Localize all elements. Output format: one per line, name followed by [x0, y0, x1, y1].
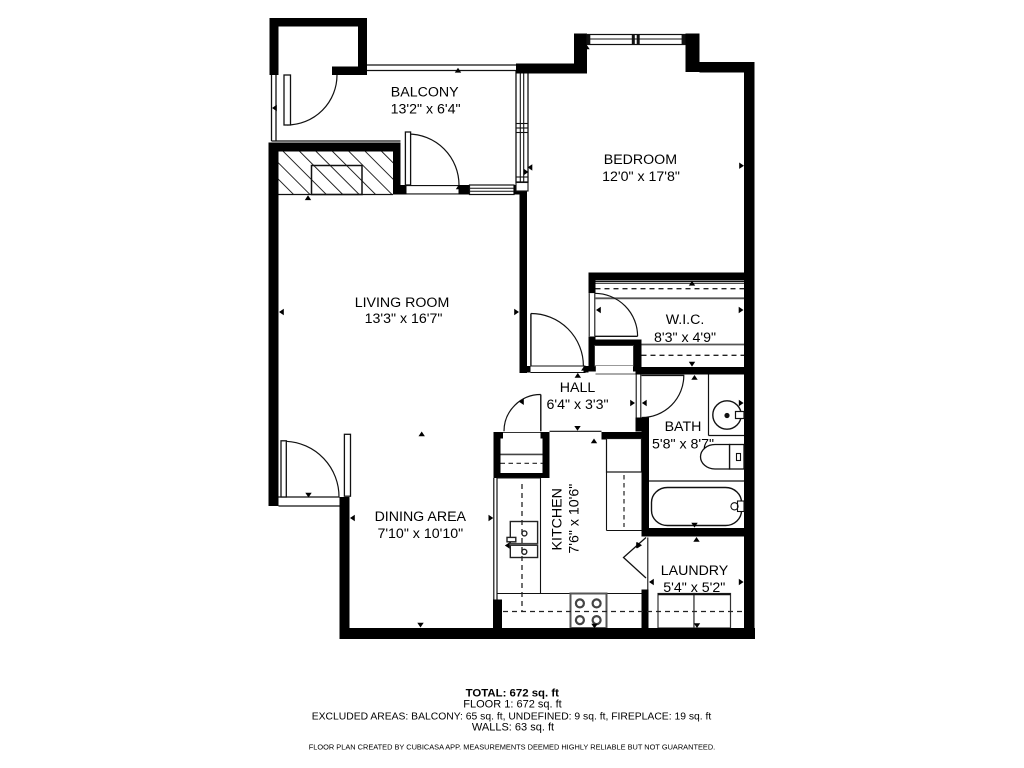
svg-text:FLOOR 1: 672 sq. ft: FLOOR 1: 672 sq. ft	[463, 699, 561, 711]
svg-text:5'8" x 8'7": 5'8" x 8'7"	[652, 437, 714, 453]
svg-text:8'3" x 4'9": 8'3" x 4'9"	[654, 330, 716, 346]
svg-text:FLOOR PLAN CREATED BY CUBICASA: FLOOR PLAN CREATED BY CUBICASA APP. MEAS…	[309, 743, 715, 752]
svg-text:W.I.C.: W.I.C.	[666, 312, 705, 328]
svg-text:7'10" x 10'10": 7'10" x 10'10"	[377, 526, 463, 542]
svg-text:HALL: HALL	[560, 380, 596, 396]
svg-text:6'4" x 3'3": 6'4" x 3'3"	[546, 397, 608, 413]
svg-text:KITCHEN: KITCHEN	[550, 488, 566, 550]
svg-text:13'3" x 16'7": 13'3" x 16'7"	[365, 311, 443, 327]
svg-text:LAUNDRY: LAUNDRY	[661, 563, 729, 579]
svg-text:13'2" x 6'4": 13'2" x 6'4"	[391, 102, 461, 118]
svg-text:BALCONY: BALCONY	[391, 85, 459, 101]
svg-text:WALLS: 63 sq. ft: WALLS: 63 sq. ft	[472, 722, 554, 734]
svg-text:7'6" x 10'6": 7'6" x 10'6"	[567, 484, 583, 554]
svg-text:5'4" x 5'2": 5'4" x 5'2"	[663, 580, 725, 596]
svg-text:12'0" x 17'8": 12'0" x 17'8"	[602, 169, 680, 185]
svg-text:BEDROOM: BEDROOM	[604, 152, 677, 168]
svg-text:BATH: BATH	[665, 419, 702, 435]
svg-text:LIVING ROOM: LIVING ROOM	[355, 295, 450, 311]
svg-text:DINING AREA: DINING AREA	[375, 509, 467, 525]
